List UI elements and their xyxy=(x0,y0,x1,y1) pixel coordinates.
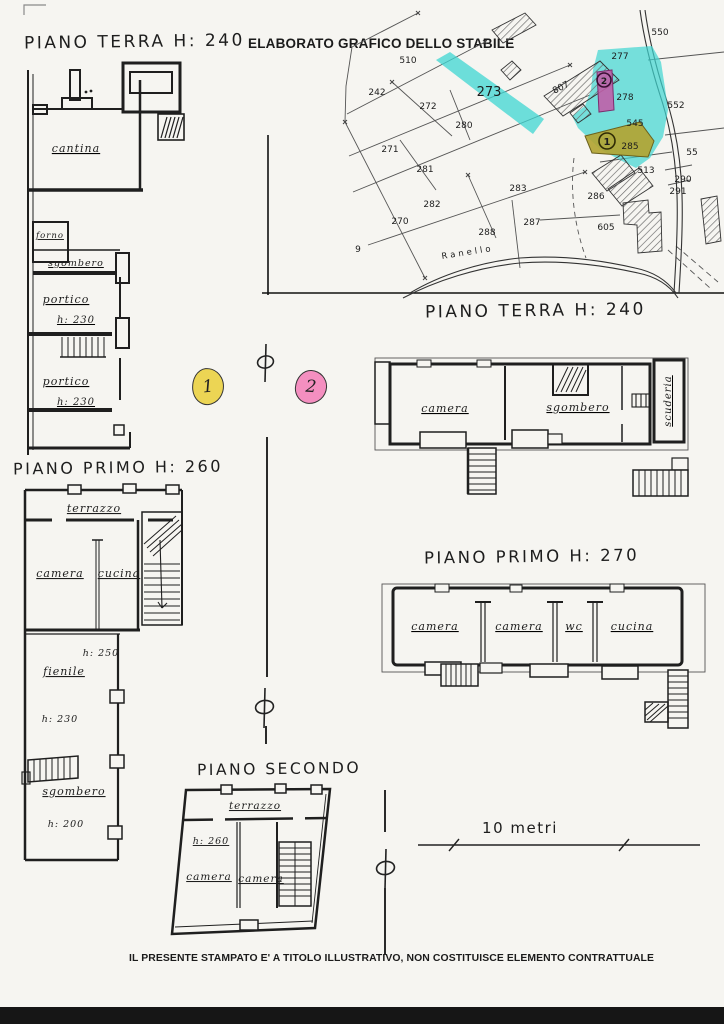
parcel-number: 55 xyxy=(686,148,697,158)
staircase-right-wing xyxy=(142,512,182,625)
floor-plan-terra-right: camera sgombero scuderia xyxy=(372,352,708,502)
stairs-top-middle xyxy=(553,364,588,395)
scanned-floor-plan-page: { "footer": { "disclaimer": "IL PRESENTE… xyxy=(0,0,724,1024)
window-grid xyxy=(632,394,650,407)
parcel-number: 271 xyxy=(381,145,398,155)
section-line-1b xyxy=(265,726,267,744)
room-label-fienile: fienile xyxy=(42,665,85,678)
parcel-number: 282 xyxy=(423,200,440,210)
room-label-camera-2: camera xyxy=(238,873,284,885)
street-label-ranello: Ranello xyxy=(441,244,494,262)
height-label-260: h: 260 xyxy=(193,836,229,847)
section-line-2b xyxy=(384,888,386,955)
parcel-number: 605 xyxy=(597,223,614,233)
scale-bar-label: 10 metri xyxy=(482,819,558,837)
parcel-number: 510 xyxy=(399,56,416,66)
parcel-number: 278 xyxy=(616,93,633,103)
scale-bar: 10 metri xyxy=(415,815,710,857)
room-label-terrazzo: terrazzo xyxy=(229,800,281,812)
legend-marker-1-number: 1 xyxy=(202,376,215,397)
room-label-camera: camera xyxy=(421,402,468,415)
section-line-2a xyxy=(384,790,386,832)
stairs-bottom-left xyxy=(441,664,478,686)
height-label-200: h: 200 xyxy=(48,819,84,830)
phi-marker-3 xyxy=(373,847,399,891)
room-label-camera: camera xyxy=(36,567,83,580)
floor-plan-terra-left: cantina forno sgombero portico h: 230 po… xyxy=(8,60,188,460)
legend-marker-2: 2 xyxy=(294,369,328,405)
scan-edge-strip xyxy=(0,1007,724,1024)
title-piano-terra-left: PIANO TERRA H: 240 xyxy=(24,30,245,53)
title-piano-secondo: PIANO SECONDO xyxy=(197,759,361,779)
svg-text:2: 2 xyxy=(601,77,607,87)
room-label-wc: wc xyxy=(565,620,583,633)
parcel-number: 285 xyxy=(621,142,638,152)
room-label-portico-1: portico xyxy=(43,293,90,306)
room-label-cantina: cantina xyxy=(52,142,100,155)
room-label-sgombero: sgombero xyxy=(48,258,104,269)
parcel-number: 270 xyxy=(391,217,408,227)
parcel-number-273: 273 xyxy=(477,85,502,100)
stairs-bottom-right xyxy=(633,458,688,496)
parcel-number: 277 xyxy=(611,52,628,62)
parcel-number: 242 xyxy=(368,88,385,98)
floor-plan-secondo: terrazzo h: 260 camera camera xyxy=(165,780,365,950)
height-label-230: h: 230 xyxy=(42,714,78,725)
parcel-boundaries xyxy=(345,13,724,288)
parcel-number: 545 xyxy=(626,119,643,129)
parcel-number: 281 xyxy=(416,165,433,175)
room-label-sgombero: sgombero xyxy=(546,401,609,414)
survey-ticks xyxy=(343,11,587,280)
room-label-scuderia: scuderia xyxy=(663,375,674,426)
room-label-camera-2: camera xyxy=(495,620,542,633)
cadastral-map: 2 1 510 242 272 280 271 281 282 270 283 … xyxy=(240,10,724,300)
parcel-number: 283 xyxy=(509,184,526,194)
parcel-number: 552 xyxy=(667,101,684,111)
scan-corner-mark xyxy=(20,2,50,18)
floor-plan-primo-right: camera camera wc cucina xyxy=(380,578,710,748)
parcel-number: 287 xyxy=(523,218,540,228)
room-label-portico-2: portico xyxy=(43,375,90,388)
parcel-number: 288 xyxy=(478,228,495,238)
parcel-number: 290 xyxy=(674,175,691,185)
legend-marker-1: 1 xyxy=(190,366,226,406)
disclaimer-text: IL PRESENTE STAMPATO E' A TITOLO ILLUSTR… xyxy=(129,953,654,964)
title-piano-terra-right: PIANO TERRA H: 240 xyxy=(425,299,646,322)
phi-marker-1 xyxy=(254,342,278,384)
room-label-camera-1: camera xyxy=(186,871,232,883)
room-label-sgombero: sgombero xyxy=(42,785,105,798)
height-label-230-a: h: 230 xyxy=(57,315,95,326)
parcel-number: 286 xyxy=(587,192,604,202)
room-label-cucina: cucina xyxy=(98,567,141,580)
height-label-250: h: 250 xyxy=(83,648,119,659)
parcel-number: 550 xyxy=(651,28,668,38)
stairs-bottom-right xyxy=(645,670,688,728)
stairs-bottom-left xyxy=(468,448,496,494)
section-line-1 xyxy=(266,437,268,677)
stray-label-9: 9 xyxy=(355,245,361,255)
room-label-forno: forno xyxy=(35,231,64,241)
parcel-number: 513 xyxy=(637,166,654,176)
parcel-number: 291 xyxy=(669,187,686,197)
room-label-camera-1: camera xyxy=(411,620,458,633)
title-piano-primo-right: PIANO PRIMO H: 270 xyxy=(424,545,639,567)
stairs-middle xyxy=(22,756,78,784)
phi-marker-2 xyxy=(252,686,278,730)
parcel-number: 272 xyxy=(419,102,436,112)
svg-text:1: 1 xyxy=(604,137,611,148)
stairs-top-right xyxy=(158,114,184,140)
legend-marker-2-number: 2 xyxy=(305,377,317,398)
stairs xyxy=(279,842,311,906)
stairs-portico xyxy=(60,337,106,357)
room-label-cucina: cucina xyxy=(611,620,654,633)
room-label-terrazzo: terrazzo xyxy=(67,502,121,515)
height-label-230-b: h: 230 xyxy=(57,397,95,408)
parcel-number: 280 xyxy=(455,121,472,131)
